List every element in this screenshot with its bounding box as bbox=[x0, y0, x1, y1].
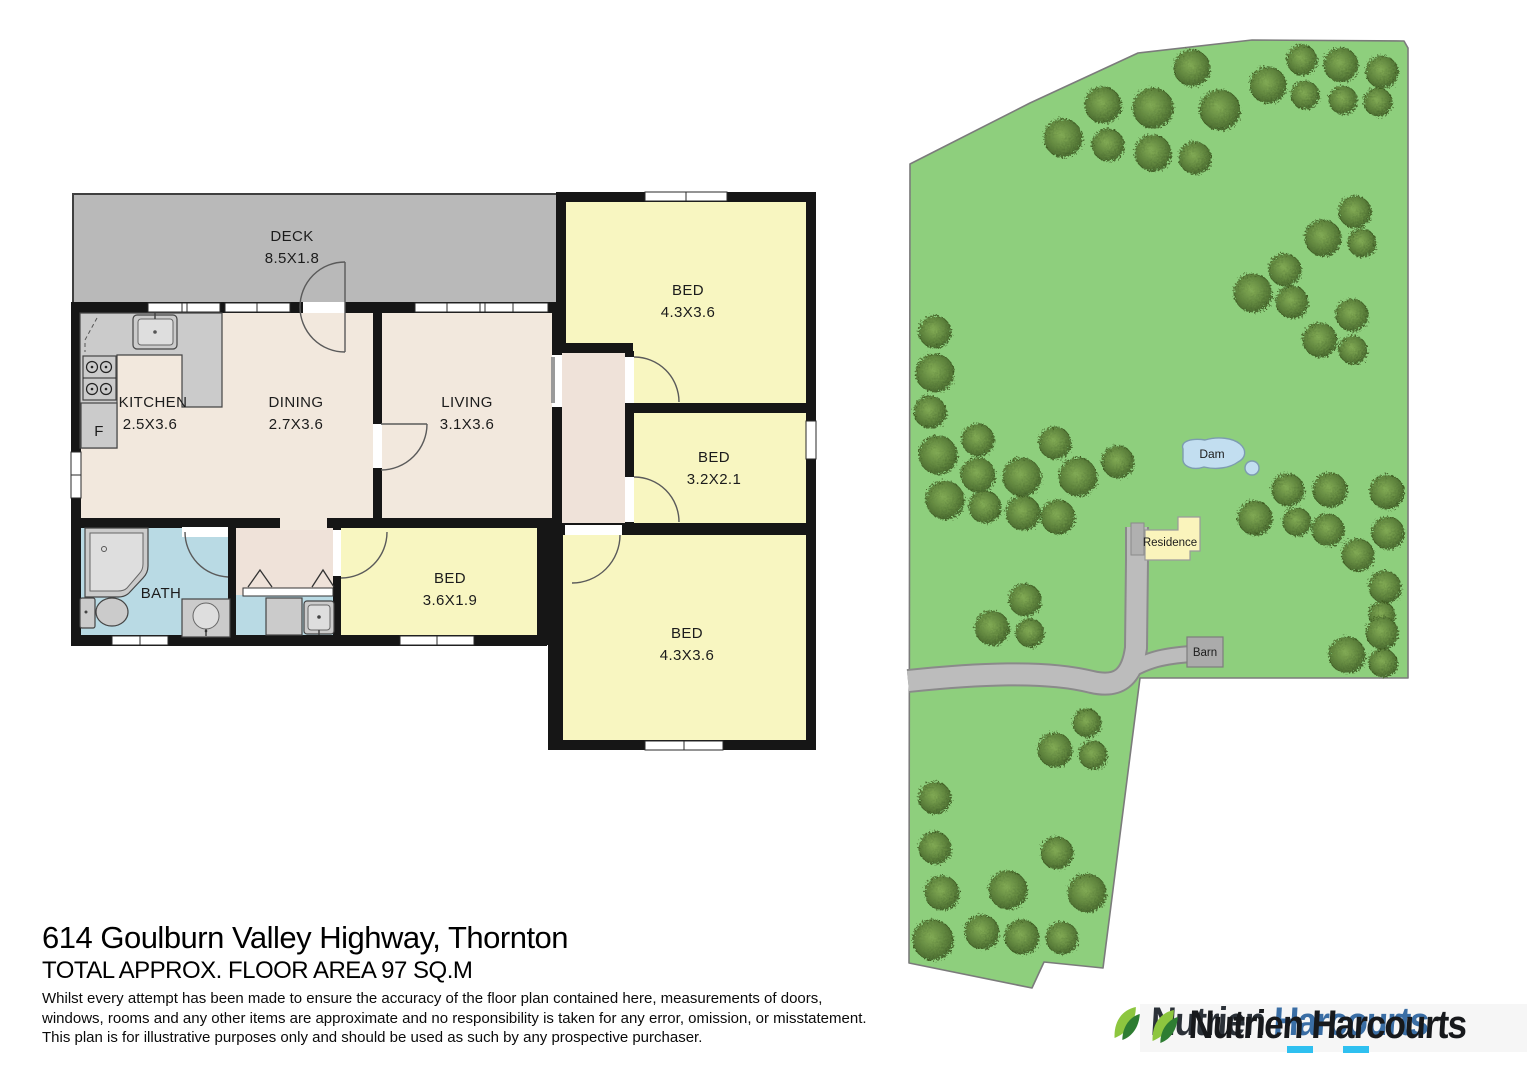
tree-icon bbox=[1079, 741, 1107, 769]
vanity-basin bbox=[193, 603, 219, 629]
plan-canvas: Dam Residence Barn bbox=[0, 0, 1527, 1080]
tree-icon bbox=[919, 316, 951, 348]
tree-icon bbox=[1305, 220, 1341, 256]
tree-icon bbox=[913, 920, 953, 960]
tree-icon bbox=[1102, 446, 1134, 478]
tree-icon bbox=[1339, 336, 1367, 364]
bed4-dims: 4.3X3.6 bbox=[660, 647, 715, 664]
tree-icon bbox=[1291, 81, 1319, 109]
toilet-tank bbox=[80, 598, 95, 628]
living-dims: 3.1X3.6 bbox=[440, 416, 495, 433]
bed3-label: BED bbox=[434, 570, 466, 587]
tree-icon bbox=[1135, 135, 1171, 171]
disclaimer-line: This plan is for illustrative purposes o… bbox=[42, 1028, 867, 1048]
deck-dims: 8.5X1.8 bbox=[265, 250, 320, 267]
tree-icon bbox=[1009, 584, 1041, 616]
tree-icon bbox=[1369, 649, 1397, 677]
tree-icon bbox=[1369, 571, 1401, 603]
kitchen-dims: 2.5X3.6 bbox=[123, 416, 178, 433]
tree-icon bbox=[914, 396, 946, 428]
logo-layer-front: Nutrien Harcourts bbox=[1149, 1003, 1468, 1048]
room-living bbox=[382, 312, 552, 518]
barn: Barn bbox=[1187, 637, 1223, 667]
room-entry bbox=[236, 527, 333, 595]
tree-icon bbox=[1276, 286, 1308, 318]
bed2-dims: 3.2X2.1 bbox=[687, 471, 742, 488]
logo-underscore-icon bbox=[1287, 1046, 1313, 1053]
tree-icon bbox=[1336, 299, 1368, 331]
room-bed2 bbox=[634, 413, 806, 523]
barn-label: Barn bbox=[1193, 647, 1217, 659]
tree-icon bbox=[1372, 517, 1404, 549]
tree-icon bbox=[1342, 539, 1374, 571]
tree-icon bbox=[1085, 87, 1121, 123]
disclaimer-line: Whilst every attempt has been made to en… bbox=[42, 989, 867, 1009]
tree-icon bbox=[919, 436, 957, 474]
tree-icon bbox=[965, 915, 999, 949]
tree-icon bbox=[1073, 709, 1101, 737]
residence-label: Residence bbox=[1143, 537, 1197, 549]
tree-icon bbox=[975, 611, 1009, 645]
floor-area-subtitle: TOTAL APPROX. FLOOR AREA 97 SQ.M bbox=[42, 957, 472, 985]
logo-word-nutrien: Nutrien bbox=[1187, 1003, 1304, 1048]
tree-icon bbox=[1006, 496, 1040, 530]
tree-icon bbox=[989, 871, 1027, 909]
deck-label: DECK bbox=[270, 228, 313, 245]
tree-icon bbox=[916, 354, 954, 392]
logo-underscore-icon bbox=[1343, 1046, 1369, 1053]
tree-icon bbox=[1339, 196, 1371, 228]
tree-icon bbox=[925, 876, 959, 910]
laundry-fixtures bbox=[266, 598, 334, 635]
tree-icon bbox=[919, 832, 951, 864]
tree-icon bbox=[1250, 67, 1286, 103]
tree-icon bbox=[1329, 86, 1357, 114]
tree-icon bbox=[969, 491, 1001, 523]
tree-icon bbox=[1366, 56, 1398, 88]
living-label: LIVING bbox=[441, 394, 493, 411]
tree-icon bbox=[1269, 254, 1301, 286]
tree-icon bbox=[1348, 229, 1376, 257]
tree-icon bbox=[926, 481, 964, 519]
tree-icon bbox=[1313, 473, 1347, 507]
tree-icon bbox=[919, 782, 951, 814]
tree-icon bbox=[1041, 500, 1075, 534]
tree-icon bbox=[1329, 637, 1365, 673]
tree-icon bbox=[961, 458, 995, 492]
room-hallway bbox=[562, 353, 625, 527]
tree-icon bbox=[1312, 514, 1344, 546]
tree-icon bbox=[1303, 323, 1337, 357]
room-deck bbox=[73, 194, 558, 304]
opening-dining-entry bbox=[280, 516, 327, 530]
tree-icon bbox=[1068, 874, 1106, 912]
tree-icon bbox=[1046, 922, 1078, 954]
bed1-label: BED bbox=[672, 282, 704, 299]
tree-icon bbox=[1059, 458, 1097, 496]
site-map: Dam Residence Barn bbox=[908, 40, 1408, 988]
dam-pond-small bbox=[1245, 461, 1259, 475]
tree-icon bbox=[1016, 619, 1044, 647]
tree-icon bbox=[1174, 50, 1210, 86]
logo-word-harcourts: Harcourts bbox=[1310, 1003, 1467, 1048]
tree-icon bbox=[1283, 508, 1311, 536]
washer bbox=[266, 598, 302, 635]
tree-icon bbox=[1044, 119, 1082, 157]
tree-icon bbox=[1234, 274, 1272, 312]
tree-icon bbox=[962, 424, 994, 456]
page-title: 614 Goulburn Valley Highway, Thornton bbox=[42, 920, 568, 956]
nutrien-harcourts-logo: Nutrien Harcourts Nutrien Harcourts bbox=[1112, 998, 1527, 1062]
floor-plan: DECK 8.5X1.8 KITCHEN 2.5X3.6 DINING 2.7X… bbox=[71, 192, 816, 750]
kitchen-label: KITCHEN bbox=[119, 394, 188, 411]
bed4-label: BED bbox=[671, 625, 703, 642]
dam-label: Dam bbox=[1199, 447, 1224, 461]
bed3-dims: 3.6X1.9 bbox=[423, 592, 478, 609]
tree-icon bbox=[1133, 88, 1173, 128]
disclaimer-text: Whilst every attempt has been made to en… bbox=[42, 989, 867, 1048]
tree-icon bbox=[1039, 427, 1071, 459]
tree-icon bbox=[1366, 617, 1398, 649]
tree-icon bbox=[1041, 837, 1073, 869]
tree-icon bbox=[1179, 142, 1211, 174]
tree-icon bbox=[1238, 501, 1272, 535]
disclaimer-line: windows, rooms and any other items are a… bbox=[42, 1009, 867, 1029]
tree-icon bbox=[1003, 458, 1041, 496]
tree-icon bbox=[1092, 129, 1124, 161]
tree-icon bbox=[1200, 90, 1240, 130]
tree-icon bbox=[1272, 474, 1304, 506]
leaf-icon bbox=[1149, 1007, 1181, 1045]
tree-icon bbox=[1005, 920, 1039, 954]
tree-icon bbox=[1287, 45, 1317, 75]
toilet-bowl bbox=[96, 598, 128, 626]
floorplan-page: Dam Residence Barn bbox=[0, 0, 1527, 1080]
tree-icon bbox=[1370, 475, 1404, 509]
dining-dims: 2.7X3.6 bbox=[269, 416, 324, 433]
bed2-label: BED bbox=[698, 449, 730, 466]
tree-icon bbox=[1364, 88, 1392, 116]
tree-icon bbox=[1038, 733, 1072, 767]
leaf-icon bbox=[1111, 1004, 1143, 1042]
bed1-dims: 4.3X3.6 bbox=[661, 304, 716, 321]
dining-label: DINING bbox=[269, 394, 324, 411]
bath-label: BATH bbox=[141, 585, 182, 602]
tree-icon bbox=[1324, 48, 1358, 82]
fridge-label: F bbox=[94, 423, 104, 440]
